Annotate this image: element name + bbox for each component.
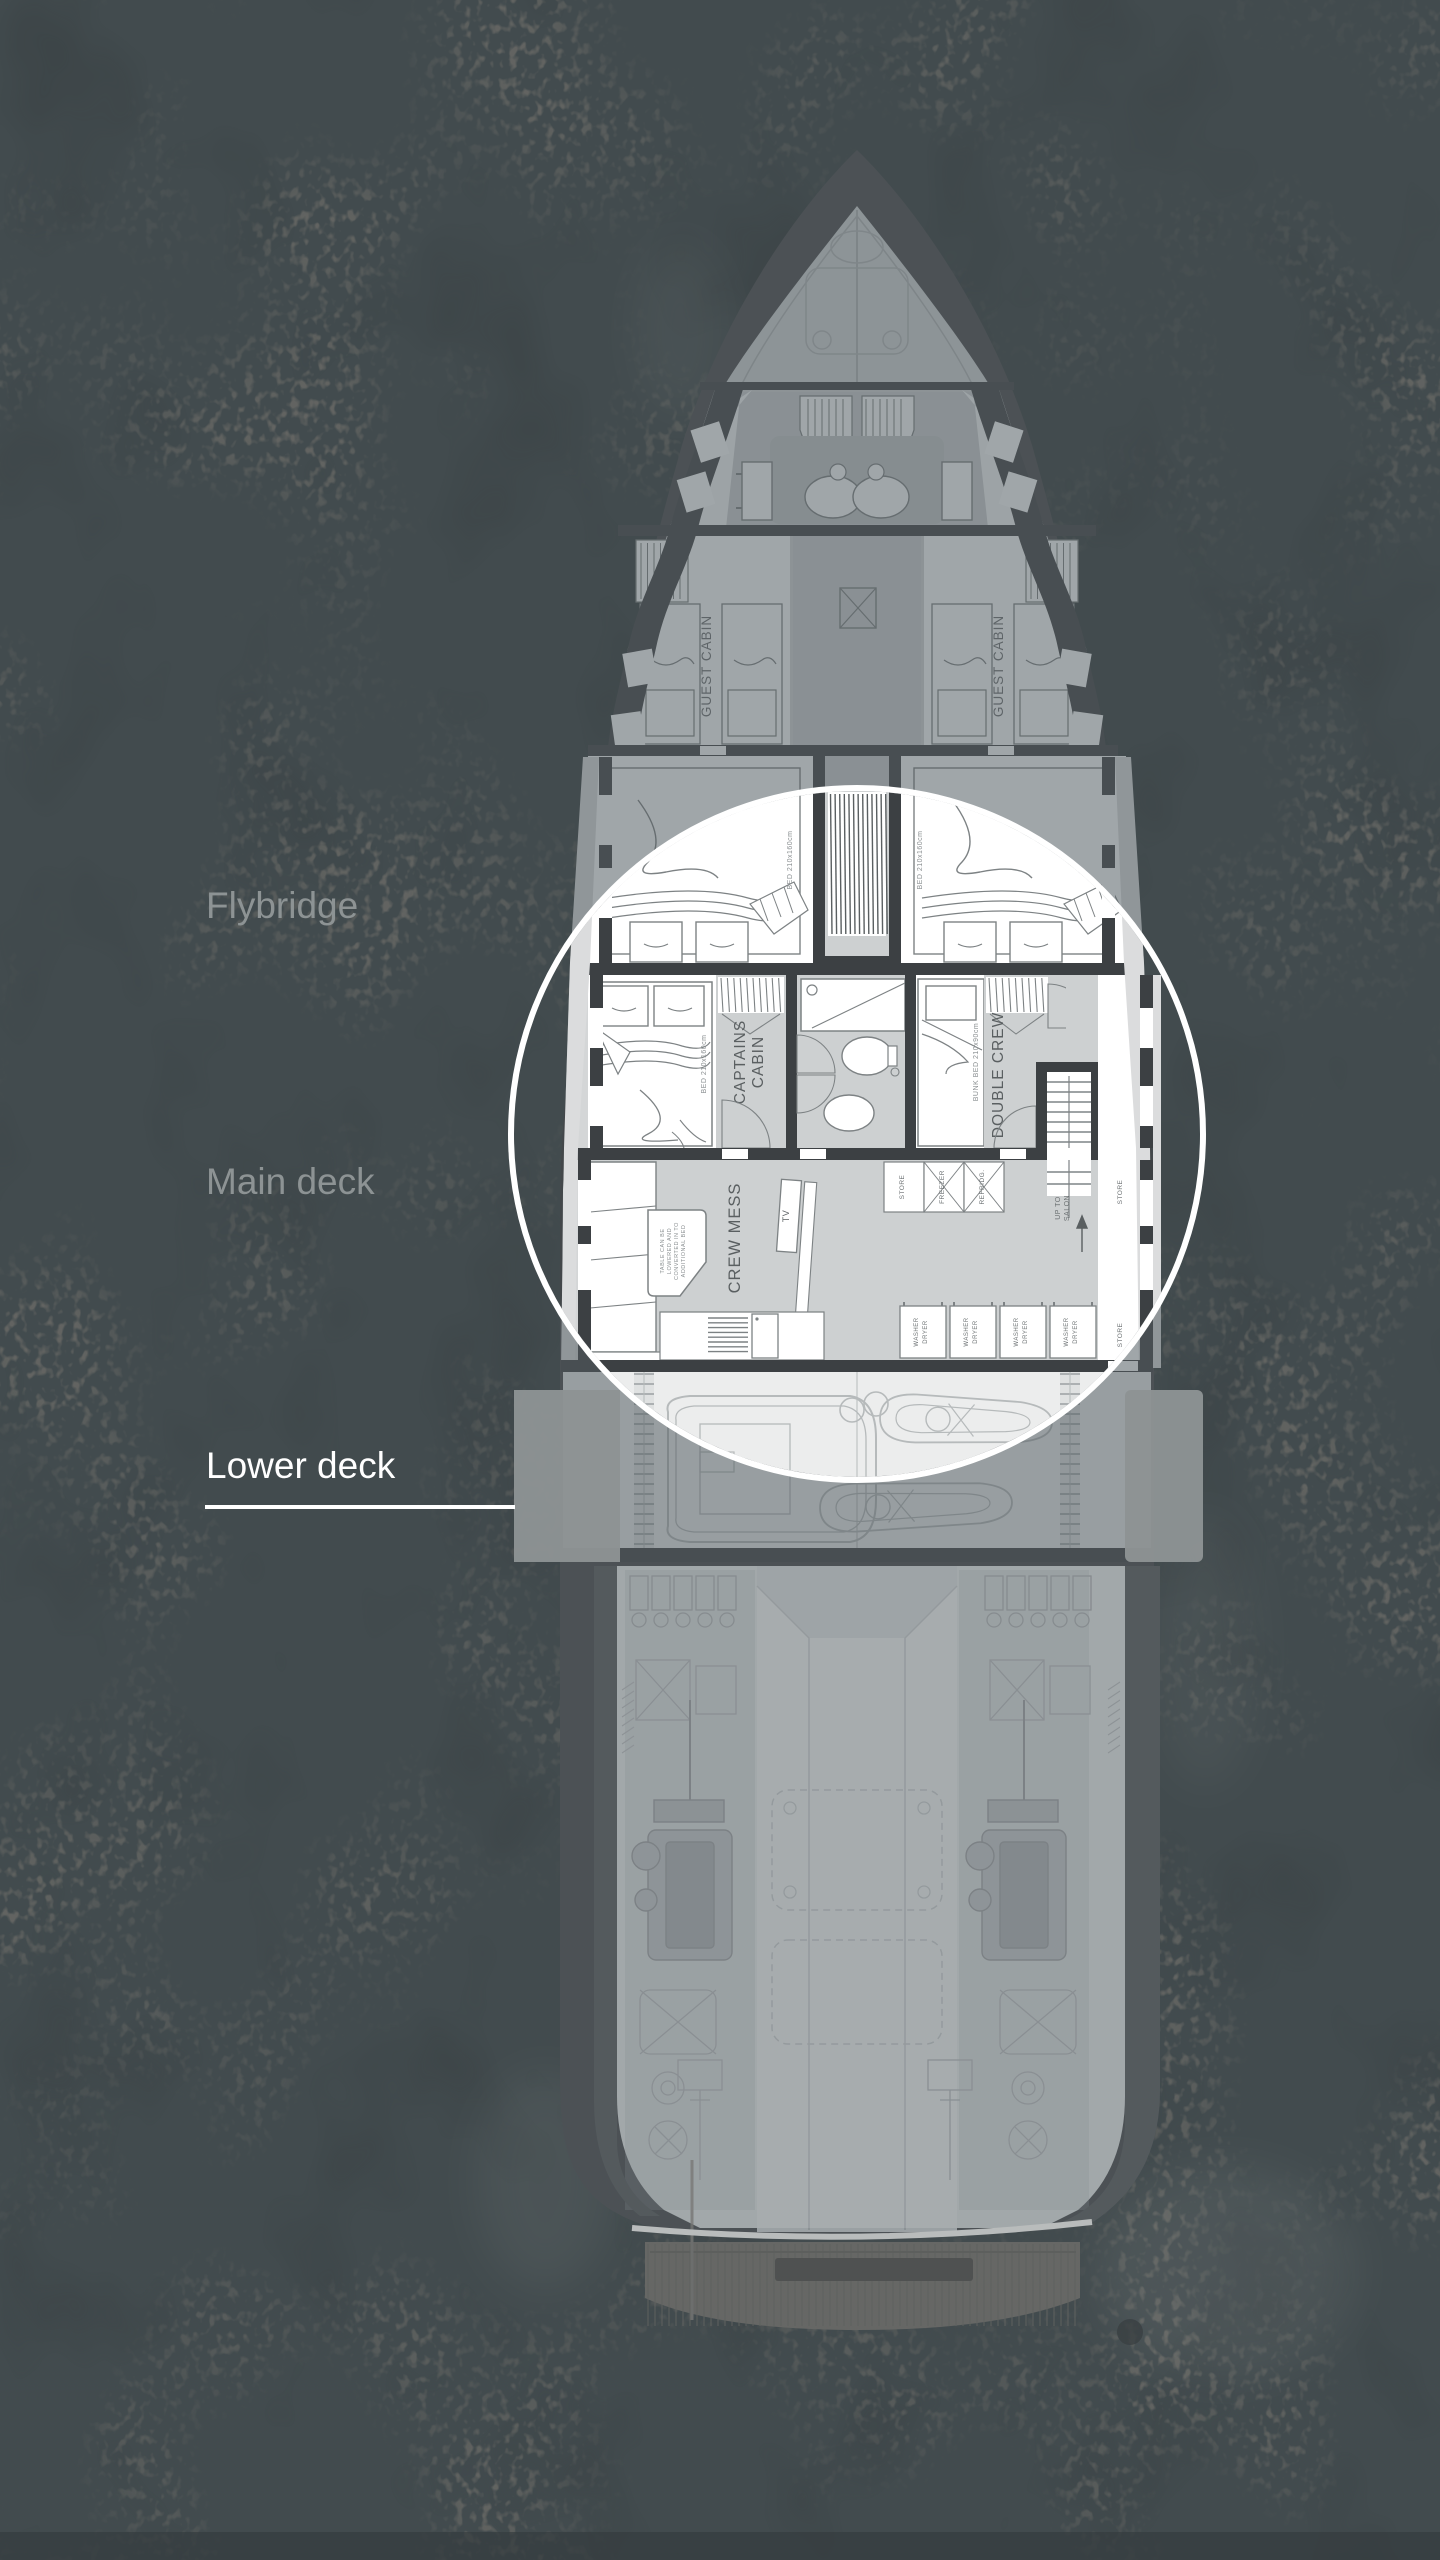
svg-text:Flybridge: Flybridge xyxy=(206,885,358,926)
svg-text:Lower deck: Lower deck xyxy=(206,1445,396,1486)
svg-text:Main deck: Main deck xyxy=(206,1161,375,1202)
